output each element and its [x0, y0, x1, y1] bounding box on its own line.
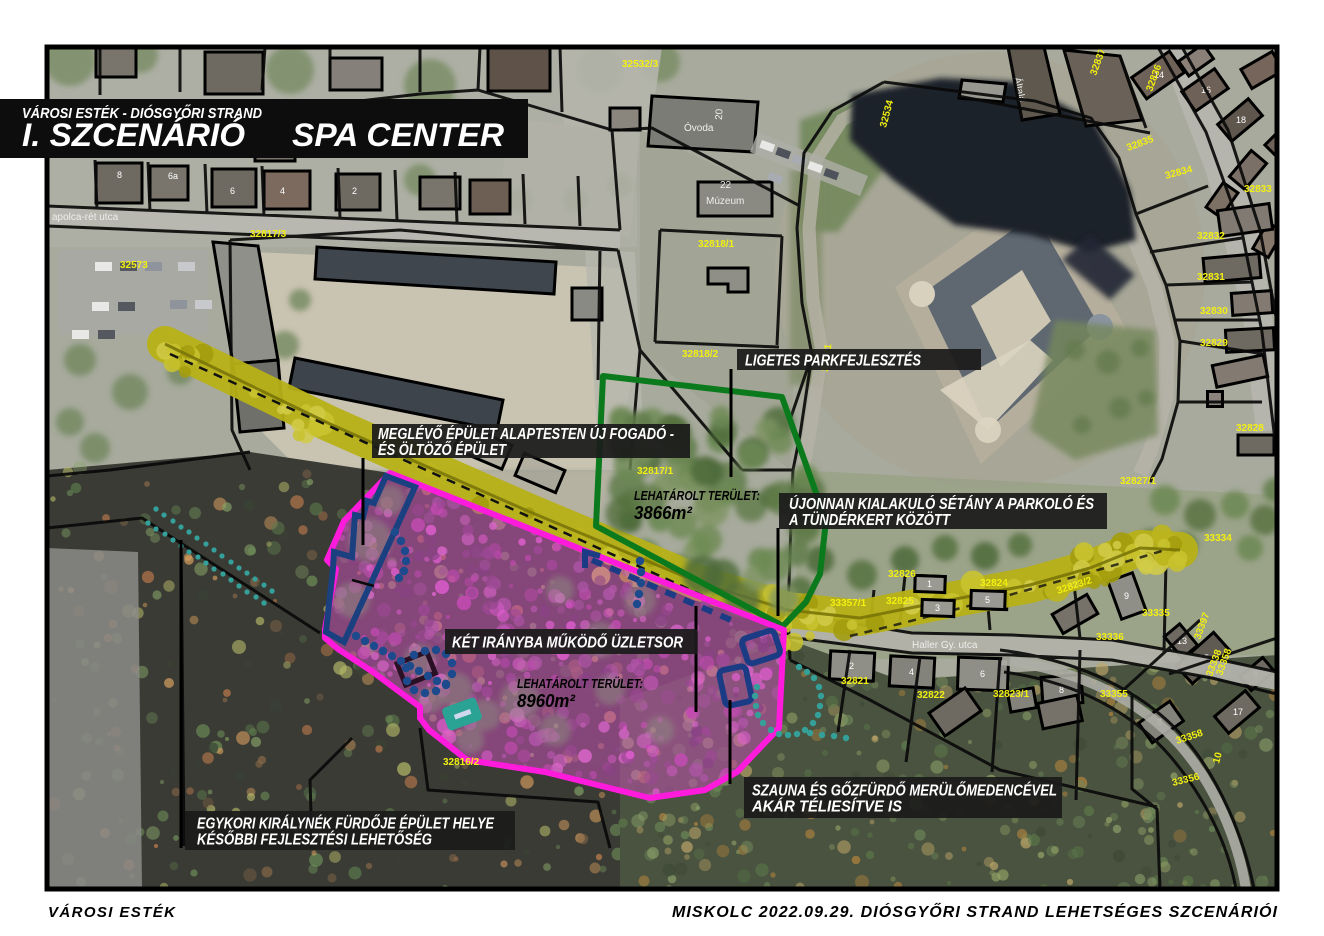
svg-text:32532/3: 32532/3	[622, 59, 659, 70]
svg-text:KÉT IRÁNYBA MŰKÖDŐ ÜZLETSOR: KÉT IRÁNYBA MŰKÖDŐ ÜZLETSOR	[452, 632, 683, 651]
svg-text:MISKOLC 2022.09.29. DIÓSGYŐRI: MISKOLC 2022.09.29. DIÓSGYŐRI STRAND LEH…	[672, 902, 1278, 921]
svg-text:2: 2	[849, 661, 854, 671]
svg-text:6a: 6a	[168, 171, 178, 181]
svg-text:4: 4	[280, 186, 285, 196]
svg-text:2: 2	[352, 186, 357, 196]
svg-text:AKÁR TÉLIESÍTVE IS: AKÁR TÉLIESÍTVE IS	[751, 796, 902, 815]
svg-text:17: 17	[1233, 707, 1243, 717]
svg-text:A TÜNDÉRKERT KÖZÖTT: A TÜNDÉRKERT KÖZÖTT	[788, 510, 951, 529]
svg-text:LIGETES PARKFEJLESZTÉS: LIGETES PARKFEJLESZTÉS	[745, 350, 921, 369]
svg-text:SPA CENTER: SPA CENTER	[292, 117, 504, 153]
svg-text:32818/2: 32818/2	[682, 349, 719, 360]
svg-text:1: 1	[927, 579, 932, 589]
svg-text:33355: 33355	[1100, 689, 1128, 700]
svg-text:32827/1: 32827/1	[1120, 476, 1157, 487]
svg-text:32821: 32821	[841, 676, 869, 687]
svg-text:32817/3: 32817/3	[250, 229, 287, 240]
svg-text:32816/2: 32816/2	[443, 757, 480, 768]
svg-text:4: 4	[909, 667, 914, 677]
svg-text:SZAUNA ÉS GŐZFÜRDŐ MERÜLŐMEDEN: SZAUNA ÉS GŐZFÜRDŐ MERÜLŐMEDENCÉVEL	[752, 780, 1057, 799]
svg-text:22: 22	[720, 180, 732, 191]
svg-text:Múzeum: Múzeum	[706, 196, 744, 207]
svg-text:32828: 32828	[1236, 423, 1264, 434]
svg-text:6: 6	[230, 186, 235, 196]
svg-text:33335: 33335	[1142, 608, 1170, 619]
svg-text:20: 20	[714, 108, 725, 120]
svg-text:5: 5	[985, 595, 990, 605]
svg-text:8: 8	[117, 170, 122, 180]
svg-text:I. SZCENÁRIÓ: I. SZCENÁRIÓ	[22, 117, 245, 153]
svg-text:18: 18	[1236, 115, 1246, 125]
svg-text:LEHATÁROLT TERÜLET:: LEHATÁROLT TERÜLET:	[634, 488, 760, 503]
svg-text:LEHATÁROLT TERÜLET:: LEHATÁROLT TERÜLET:	[517, 676, 643, 691]
svg-text:3: 3	[935, 603, 940, 613]
svg-text:33336: 33336	[1096, 632, 1124, 643]
svg-text:33357/1: 33357/1	[830, 598, 867, 609]
svg-text:9: 9	[1124, 591, 1129, 601]
svg-text:EGYKORI KIRÁLYNÉK FÜRDŐJE ÉPÜL: EGYKORI KIRÁLYNÉK FÜRDŐJE ÉPÜLET HELYE	[197, 813, 495, 832]
svg-text:8960m²: 8960m²	[517, 691, 576, 711]
svg-text:32818/1: 32818/1	[698, 239, 735, 250]
svg-text:33334: 33334	[1204, 533, 1232, 544]
svg-text:32824: 32824	[980, 578, 1008, 589]
svg-text:32573: 32573	[120, 260, 148, 271]
svg-text:32826: 32826	[888, 569, 916, 580]
svg-text:32833: 32833	[1244, 184, 1272, 195]
svg-text:32817/1: 32817/1	[637, 466, 674, 477]
svg-text:32832: 32832	[1197, 231, 1225, 242]
svg-text:Óvoda: Óvoda	[684, 121, 714, 134]
svg-text:MEGLÉVŐ ÉPÜLET ALAPTESTEN ÚJ F: MEGLÉVŐ ÉPÜLET ALAPTESTEN ÚJ FOGADÓ -	[378, 424, 674, 443]
svg-text:32829: 32829	[1200, 338, 1228, 349]
svg-text:6: 6	[980, 669, 985, 679]
svg-text:VÁROSI ESTÉK: VÁROSI ESTÉK	[48, 904, 176, 921]
svg-text:Haller Gy. utca: Haller Gy. utca	[912, 640, 978, 651]
svg-text:ÚJONNAN KIALAKULÓ SÉTÁNY A PAR: ÚJONNAN KIALAKULÓ SÉTÁNY A PARKOLÓ ÉS	[789, 494, 1094, 513]
svg-text:KÉSŐBBI FEJLESZTÉSI LEHETŐSÉG: KÉSŐBBI FEJLESZTÉSI LEHETŐSÉG	[197, 829, 432, 848]
svg-text:32822: 32822	[917, 690, 945, 701]
svg-text:ÉS ÖLTÖZŐ ÉPÜLET: ÉS ÖLTÖZŐ ÉPÜLET	[378, 440, 507, 459]
svg-text:32825: 32825	[886, 596, 914, 607]
svg-text:32830: 32830	[1200, 306, 1228, 317]
svg-text:32831: 32831	[1197, 272, 1225, 283]
svg-text:32823/1: 32823/1	[993, 689, 1030, 700]
svg-text:3866m²: 3866m²	[634, 503, 693, 523]
svg-text:apolca-rét utca: apolca-rét utca	[52, 212, 119, 223]
